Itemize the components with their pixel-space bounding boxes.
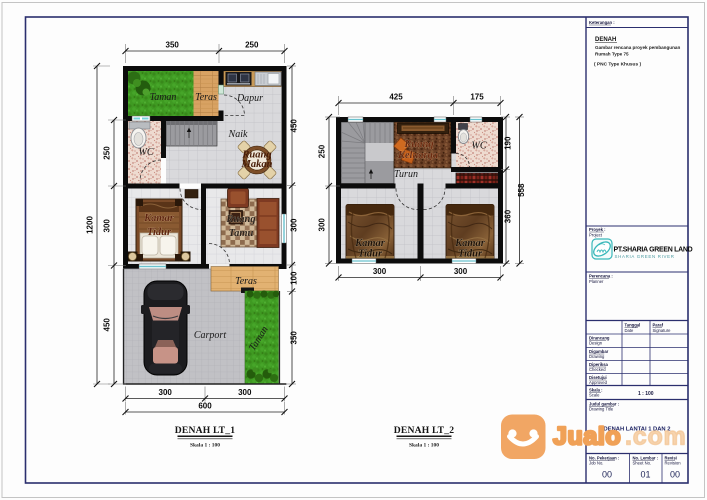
svg-text:Keluarga: Keluarga (397, 150, 438, 161)
svg-text:Drawing Title: Drawing Title (589, 407, 614, 412)
svg-text:Scale: Scale (589, 393, 600, 398)
svg-text:Taman: Taman (150, 92, 177, 103)
svg-text:300: 300 (290, 218, 299, 232)
svg-text:1 : 100: 1 : 100 (638, 391, 654, 397)
svg-text:Tidur: Tidur (458, 249, 483, 260)
svg-text:Ruang: Ruang (225, 214, 255, 225)
svg-text:Kamar: Kamar (143, 213, 175, 224)
svg-text:Project: Project (589, 233, 603, 238)
svg-text:300: 300 (318, 218, 327, 232)
svg-text:Kamar: Kamar (354, 238, 386, 249)
svg-text:Paraf: Paraf (653, 323, 664, 328)
svg-text:350: 350 (290, 331, 299, 345)
svg-text:250: 250 (103, 146, 112, 160)
svg-text:Kamar: Kamar (454, 238, 486, 249)
svg-text:350: 350 (166, 41, 180, 50)
svg-text:Naik: Naik (228, 129, 248, 140)
svg-text:Proyek :: Proyek : (589, 227, 606, 232)
svg-text:Tanggal: Tanggal (625, 323, 641, 328)
svg-text:450: 450 (103, 318, 112, 332)
svg-text:Jualo: Jualo (553, 423, 621, 451)
svg-text:1200: 1200 (86, 216, 95, 234)
svg-text:360: 360 (504, 209, 513, 223)
svg-text:300: 300 (238, 388, 252, 397)
svg-text:Planner: Planner (589, 279, 604, 284)
svg-text:175: 175 (470, 93, 484, 102)
svg-text:Teras: Teras (235, 276, 257, 287)
svg-text:Revision: Revision (665, 461, 682, 466)
svg-text:SHARIA GREEN RIVER: SHARIA GREEN RIVER (615, 254, 675, 259)
svg-text:425: 425 (389, 93, 403, 102)
svg-text:Gambar rencana proyek pembangu: Gambar rencana proyek pembangunan (595, 45, 680, 50)
svg-text:WC: WC (139, 147, 154, 158)
svg-text:.com: .com (625, 423, 687, 451)
svg-text:Approved: Approved (589, 380, 608, 385)
svg-text:300: 300 (454, 267, 468, 276)
svg-text:300: 300 (159, 388, 173, 397)
svg-text:Makan: Makan (241, 159, 273, 170)
svg-text:DENAH LT_1: DENAH LT_1 (175, 425, 236, 436)
svg-text:558: 558 (517, 183, 526, 197)
svg-text:00: 00 (670, 470, 680, 480)
svg-text:Signature: Signature (653, 328, 672, 333)
svg-text:00: 00 (602, 470, 612, 480)
svg-text:Keterangan :: Keterangan : (589, 20, 615, 25)
svg-text:01: 01 (640, 470, 650, 480)
svg-text:Tidur: Tidur (358, 249, 383, 260)
svg-text:Teras: Teras (195, 92, 217, 103)
svg-text:190: 190 (504, 136, 513, 150)
svg-text:Job No.: Job No. (589, 461, 603, 466)
svg-text:Perencana :: Perencana : (589, 274, 613, 279)
svg-text:100: 100 (290, 271, 299, 285)
svg-text:Rumah Type 75: Rumah Type 75 (595, 52, 629, 57)
svg-text:600: 600 (198, 402, 212, 411)
svg-text:Turun: Turun (394, 169, 418, 180)
svg-text:Tidur: Tidur (147, 227, 172, 238)
svg-text:WC: WC (472, 141, 487, 152)
svg-text:450: 450 (290, 119, 299, 133)
svg-text:Carport: Carport (194, 330, 226, 341)
svg-text:( PNC Type Khusus ): ( PNC Type Khusus ) (594, 62, 641, 68)
svg-text:Skala 1 : 100: Skala 1 : 100 (190, 443, 220, 449)
svg-text:Checked: Checked (589, 367, 606, 372)
svg-text:PT.SHARIA GREEN LAND: PT.SHARIA GREEN LAND (614, 247, 693, 254)
svg-text:250: 250 (318, 144, 327, 158)
svg-text:Ruang: Ruang (403, 139, 433, 150)
svg-text:Skala 1 : 100: Skala 1 : 100 (409, 443, 439, 449)
svg-text:Drawing: Drawing (589, 354, 605, 359)
svg-text:Design: Design (589, 341, 603, 346)
svg-text:300: 300 (373, 267, 387, 276)
svg-text:Tamu: Tamu (229, 228, 254, 239)
svg-text:Sheet No.: Sheet No. (633, 461, 652, 466)
svg-text:Date: Date (625, 328, 635, 333)
svg-text:300: 300 (103, 219, 112, 233)
svg-text:250: 250 (245, 41, 259, 50)
svg-text:DENAH LT_2: DENAH LT_2 (394, 425, 455, 436)
